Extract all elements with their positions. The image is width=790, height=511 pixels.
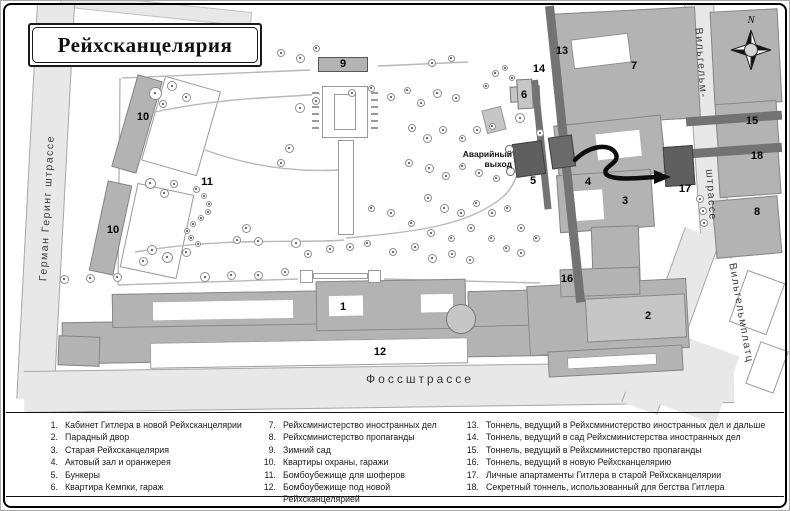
legend-item-text: Тоннель, ведущий в сад Рейхсминистерства… xyxy=(486,431,741,443)
legend-item: 2.Парадный двор xyxy=(38,431,252,443)
legend-item-number: 14. xyxy=(455,431,486,443)
map-number-8: 8 xyxy=(754,206,760,218)
legend-item-text: Бункеры xyxy=(65,469,100,481)
map-number-15: 15 xyxy=(746,115,758,127)
legend-item-number: 6. xyxy=(38,481,65,493)
map-number-16: 16 xyxy=(561,273,573,285)
legend-item-text: Зимний сад xyxy=(283,444,331,456)
legend-item-number: 7. xyxy=(256,419,283,431)
legend-item-text: Бомбоубежище под новой Рейхсканцелярией xyxy=(283,481,452,506)
legend-item: 5.Бункеры xyxy=(38,469,252,481)
map-number-3: 3 xyxy=(622,195,628,207)
legend-top-rule xyxy=(6,412,784,413)
legend-item-number: 2. xyxy=(38,431,65,443)
legend-item-text: Личные апартаменты Гитлера в старой Рейх… xyxy=(486,469,721,481)
map-page: N Герман Геринг штрассе Фоссштрассе Виль… xyxy=(0,0,790,511)
legend-item: 10.Квартиры охраны, гаражи xyxy=(256,456,452,468)
escape-route-arrow xyxy=(560,135,680,195)
legend-item: 17.Личные апартаменты Гитлера в старой Р… xyxy=(455,469,783,481)
legend-item-number: 18. xyxy=(455,481,486,493)
map-title: Рейхсканцелярия xyxy=(30,25,260,65)
legend-item-text: Бомбоубежище для шоферов xyxy=(283,469,405,481)
map-number-17: 17 xyxy=(679,183,691,195)
legend-item: 4.Актовый зал и оранжерея xyxy=(38,456,252,468)
legend-item: 12.Бомбоубежище под новой Рейхсканцеляри… xyxy=(256,481,452,506)
legend-item-text: Тоннель, ведущий в новую Рейхсканцелярию xyxy=(486,456,671,468)
legend-item-number: 13. xyxy=(455,419,486,431)
legend-item-number: 16. xyxy=(455,456,486,468)
legend-item-text: Квартира Кемпки, гараж xyxy=(65,481,164,493)
legend-item-number: 12. xyxy=(256,481,283,506)
legend-item-number: 1. xyxy=(38,419,65,431)
legend-item: 7.Рейхсминистерство иностранных дел xyxy=(256,419,452,431)
map-number-11: 11 xyxy=(201,176,213,188)
legend-item: 6.Квартира Кемпки, гараж xyxy=(38,481,252,493)
map-number-5: 5 xyxy=(530,175,536,187)
legend-item-text: Актовый зал и оранжерея xyxy=(65,456,171,468)
legend-item: 1.Кабинет Гитлера в новой Рейхсканцеляри… xyxy=(38,419,252,431)
map-number-10: 10 xyxy=(137,111,149,123)
legend-item-number: 4. xyxy=(38,456,65,468)
legend-column-3: 13.Тоннель, ведущий в Рейхсминистерство … xyxy=(455,419,783,493)
legend-item: 11.Бомбоубежище для шоферов xyxy=(256,469,452,481)
legend-item: 18.Секретный тоннель, использованный для… xyxy=(455,481,783,493)
map-number-7: 7 xyxy=(631,60,637,72)
legend-item: 8.Рейхсминистерство пропаганды xyxy=(256,431,452,443)
legend-item: 13.Тоннель, ведущий в Рейхсминистерство … xyxy=(455,419,783,431)
map-number-2: 2 xyxy=(645,310,651,322)
legend-item: 9.Зимний сад xyxy=(256,444,452,456)
map-number-18: 18 xyxy=(751,150,763,162)
legend-item-number: 17. xyxy=(455,469,486,481)
legend-item-text: Тоннель, ведущий в Рейхсминистерство ино… xyxy=(486,419,765,431)
legend-item-text: Рейхсминистерство иностранных дел xyxy=(283,419,437,431)
map-number-9: 9 xyxy=(340,58,346,70)
legend-item-text: Рейхсминистерство пропаганды xyxy=(283,431,415,443)
map-number-6: 6 xyxy=(521,89,527,101)
legend-item: 15.Тоннель, ведущий в Рейхсминистерство … xyxy=(455,444,783,456)
legend-item-text: Парадный двор xyxy=(65,431,129,443)
legend-item: 3.Старая Рейхсканцелярия xyxy=(38,444,252,456)
legend-item: 14.Тоннель, ведущий в сад Рейхсминистерс… xyxy=(455,431,783,443)
legend-item-number: 11. xyxy=(256,469,283,481)
map-number-1: 1 xyxy=(340,301,346,313)
legend-item-text: Старая Рейхсканцелярия xyxy=(65,444,169,456)
map-number-14: 14 xyxy=(533,63,545,75)
legend-item-text: Квартиры охраны, гаражи xyxy=(283,456,388,468)
map-number-12: 12 xyxy=(374,346,386,358)
map-number-13: 13 xyxy=(556,45,568,57)
legend-item-number: 10. xyxy=(256,456,283,468)
legend-column-2: 7.Рейхсминистерство иностранных дел8.Рей… xyxy=(256,419,452,506)
map-number-10: 10 xyxy=(107,224,119,236)
legend-item-text: Тоннель, ведущий в Рейхсминистерство про… xyxy=(486,444,702,456)
legend-item: 16.Тоннель, ведущий в новую Рейхсканцеля… xyxy=(455,456,783,468)
legend-item-number: 8. xyxy=(256,431,283,443)
legend-item-number: 3. xyxy=(38,444,65,456)
legend-item-number: 15. xyxy=(455,444,486,456)
legend-item-text: Кабинет Гитлера в новой Рейхсканцелярии xyxy=(65,419,242,431)
legend-item-number: 5. xyxy=(38,469,65,481)
map-title-box: Рейхсканцелярия xyxy=(28,23,262,67)
legend-item-text: Секретный тоннель, использованный для бе… xyxy=(486,481,725,493)
legend-column-1: 1.Кабинет Гитлера в новой Рейхсканцеляри… xyxy=(38,419,252,493)
legend-item-number: 9. xyxy=(256,444,283,456)
